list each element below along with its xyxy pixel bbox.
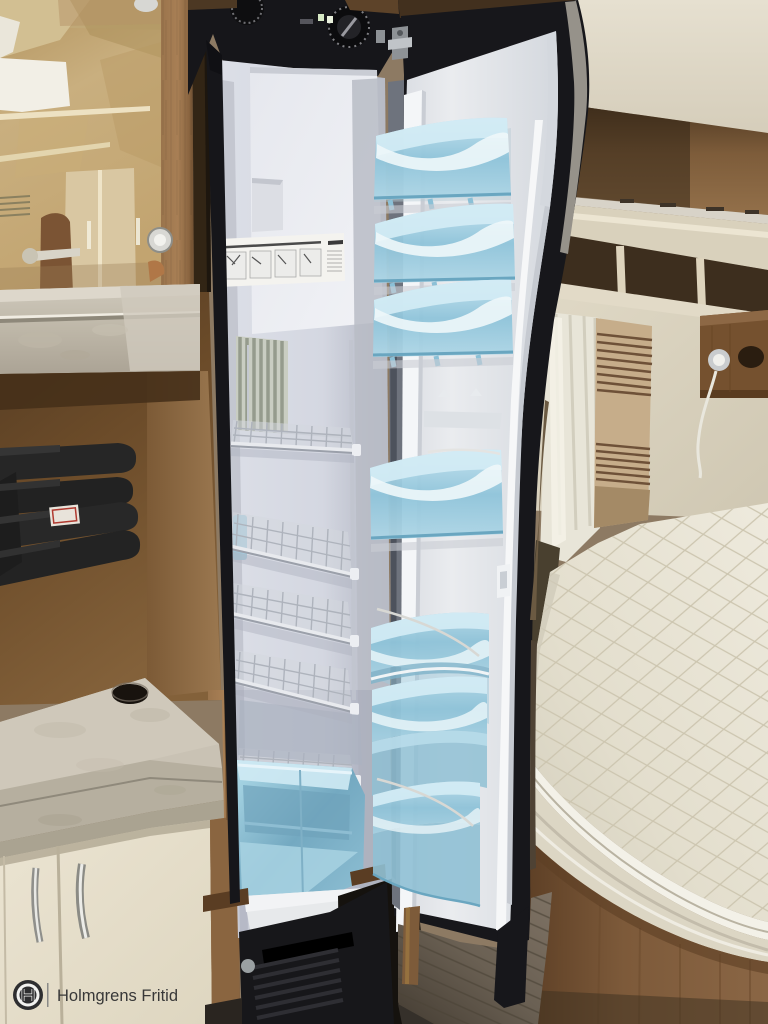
svg-text:Holmgrens Fritid: Holmgrens Fritid [57,987,178,1005]
